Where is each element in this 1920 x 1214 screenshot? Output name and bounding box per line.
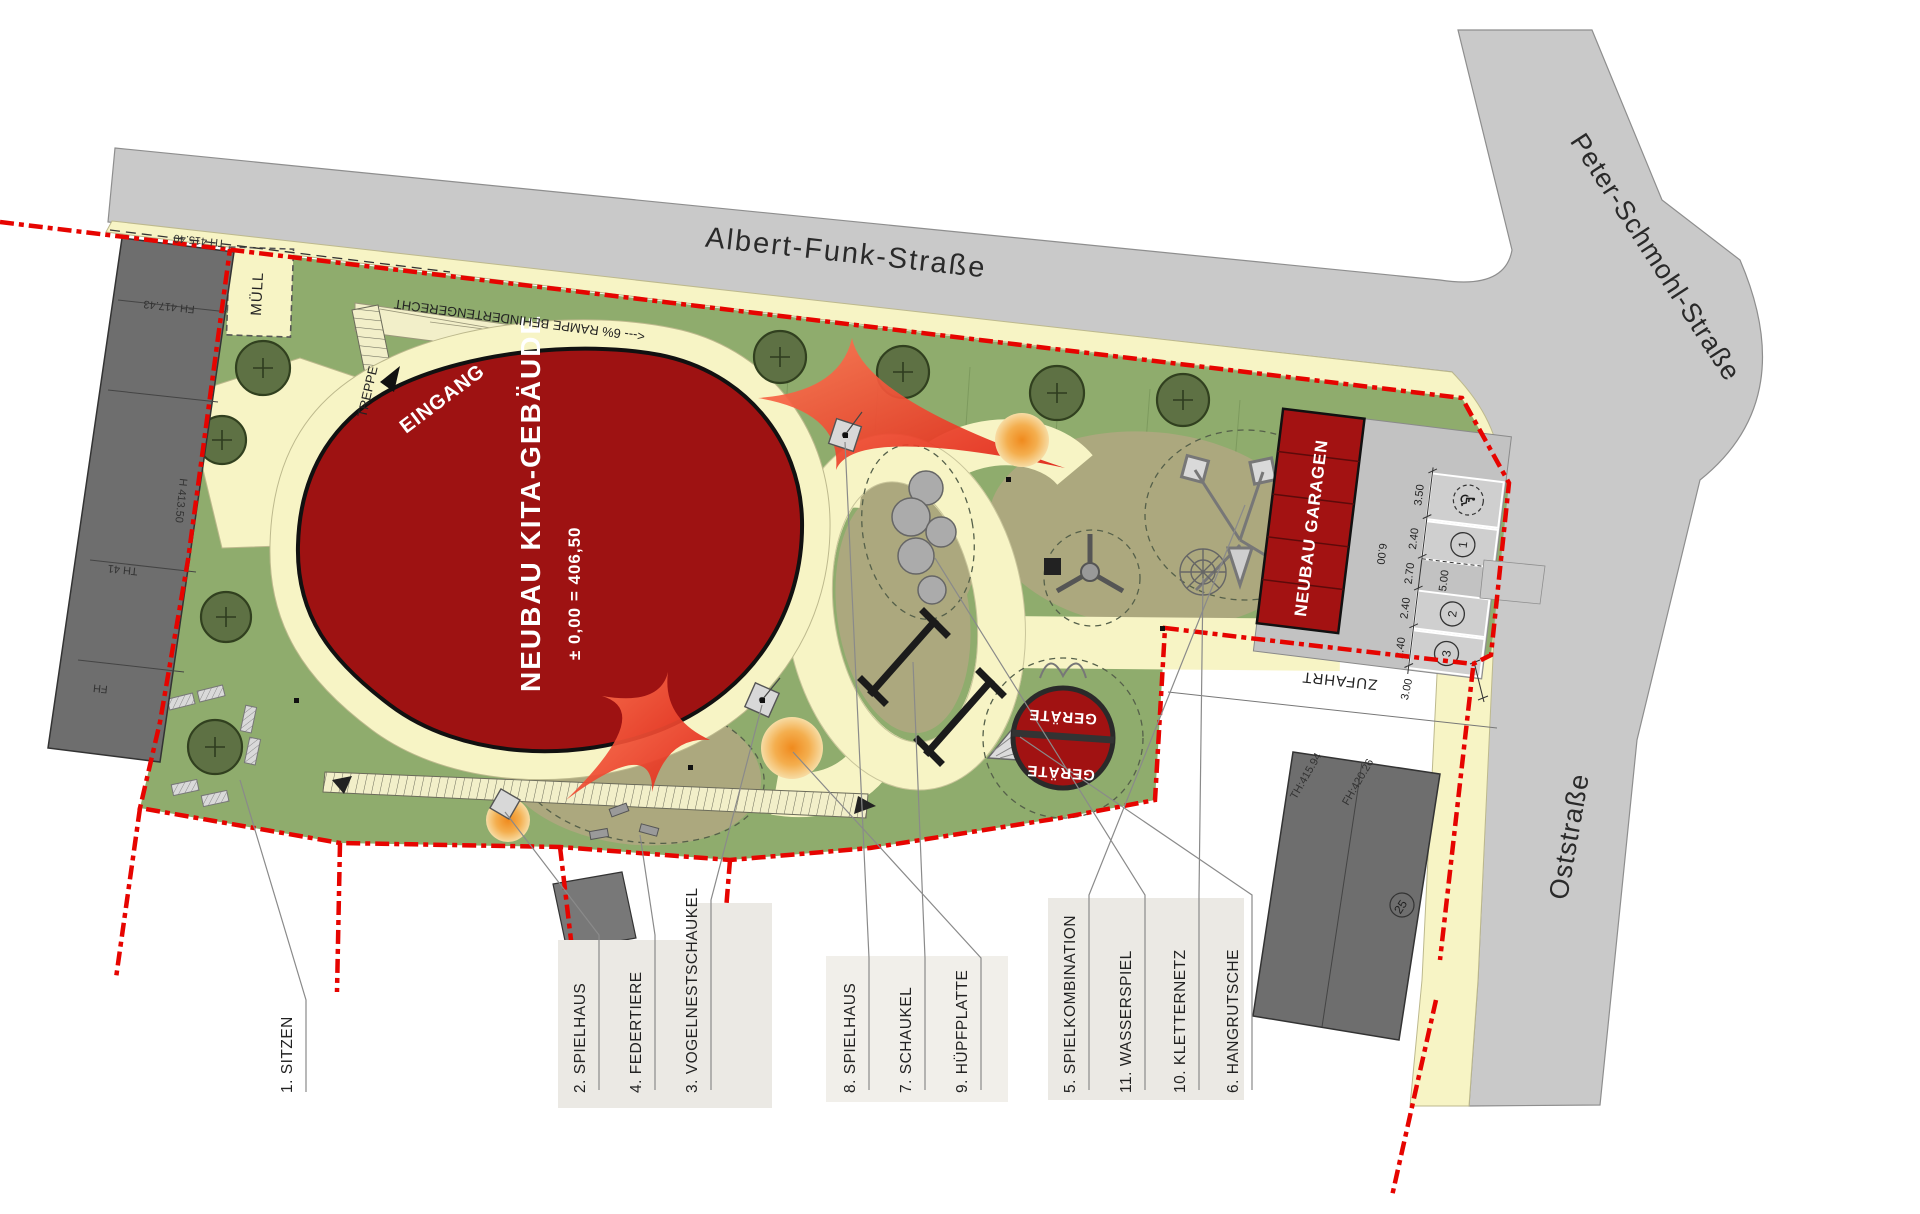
legend-item-huepfplatte: 9. HÜPFPLATTE	[953, 970, 971, 1093]
legend-item-schaukel: 7. SCHAUKEL	[898, 987, 915, 1093]
legend-item-spielhaus8: 8. SPIELHAUS	[842, 983, 859, 1093]
legend-item-wasserspiel: 11. WASSERSPIEL	[1118, 950, 1135, 1093]
kita-level-label: ± 0,00 = 406,50	[565, 526, 584, 660]
legend-item-hangrutsche: 6. HANGRUTSCHE	[1225, 949, 1242, 1093]
dim-drive: 3.00	[1399, 678, 1415, 701]
elev-left-lower: FH	[92, 681, 108, 694]
huepfplatte	[761, 717, 823, 779]
site-plan: ♿ 1 2 3 3.50 2.40 2.70 5.00 2.40 2.40 6.…	[0, 0, 1920, 1214]
kita-building	[298, 349, 802, 752]
legend-item-federtiere: 4. FEDERTIERE	[628, 971, 645, 1093]
legend-item-kletternetz: 10. KLETTERNETZ	[1172, 949, 1189, 1093]
legend-item-sitzen: 1. SITZEN	[279, 1016, 296, 1093]
orange-feature-east	[995, 413, 1049, 467]
zufahrt-label: ZUFAHRT	[1301, 668, 1378, 693]
parking-entrance	[1480, 560, 1545, 604]
wheelchair-icon: ♿	[1454, 491, 1478, 511]
muell-label: MÜLL	[247, 271, 267, 316]
legend-item-spielhaus2: 2. SPIELHAUS	[572, 983, 589, 1093]
legend-item-vogelnestschaukel: 3. VOGELNESTSCHAUKEL	[684, 887, 701, 1093]
site-plan-drawing: ♿ 1 2 3 3.50 2.40 2.70 5.00 2.40 2.40 6.…	[0, 0, 1920, 1214]
kita-building-label: NEUBAU KITA-GEBÄUDE	[515, 314, 546, 692]
legend-item-spielkombination: 5. SPIELKOMBINATION	[1062, 915, 1079, 1093]
